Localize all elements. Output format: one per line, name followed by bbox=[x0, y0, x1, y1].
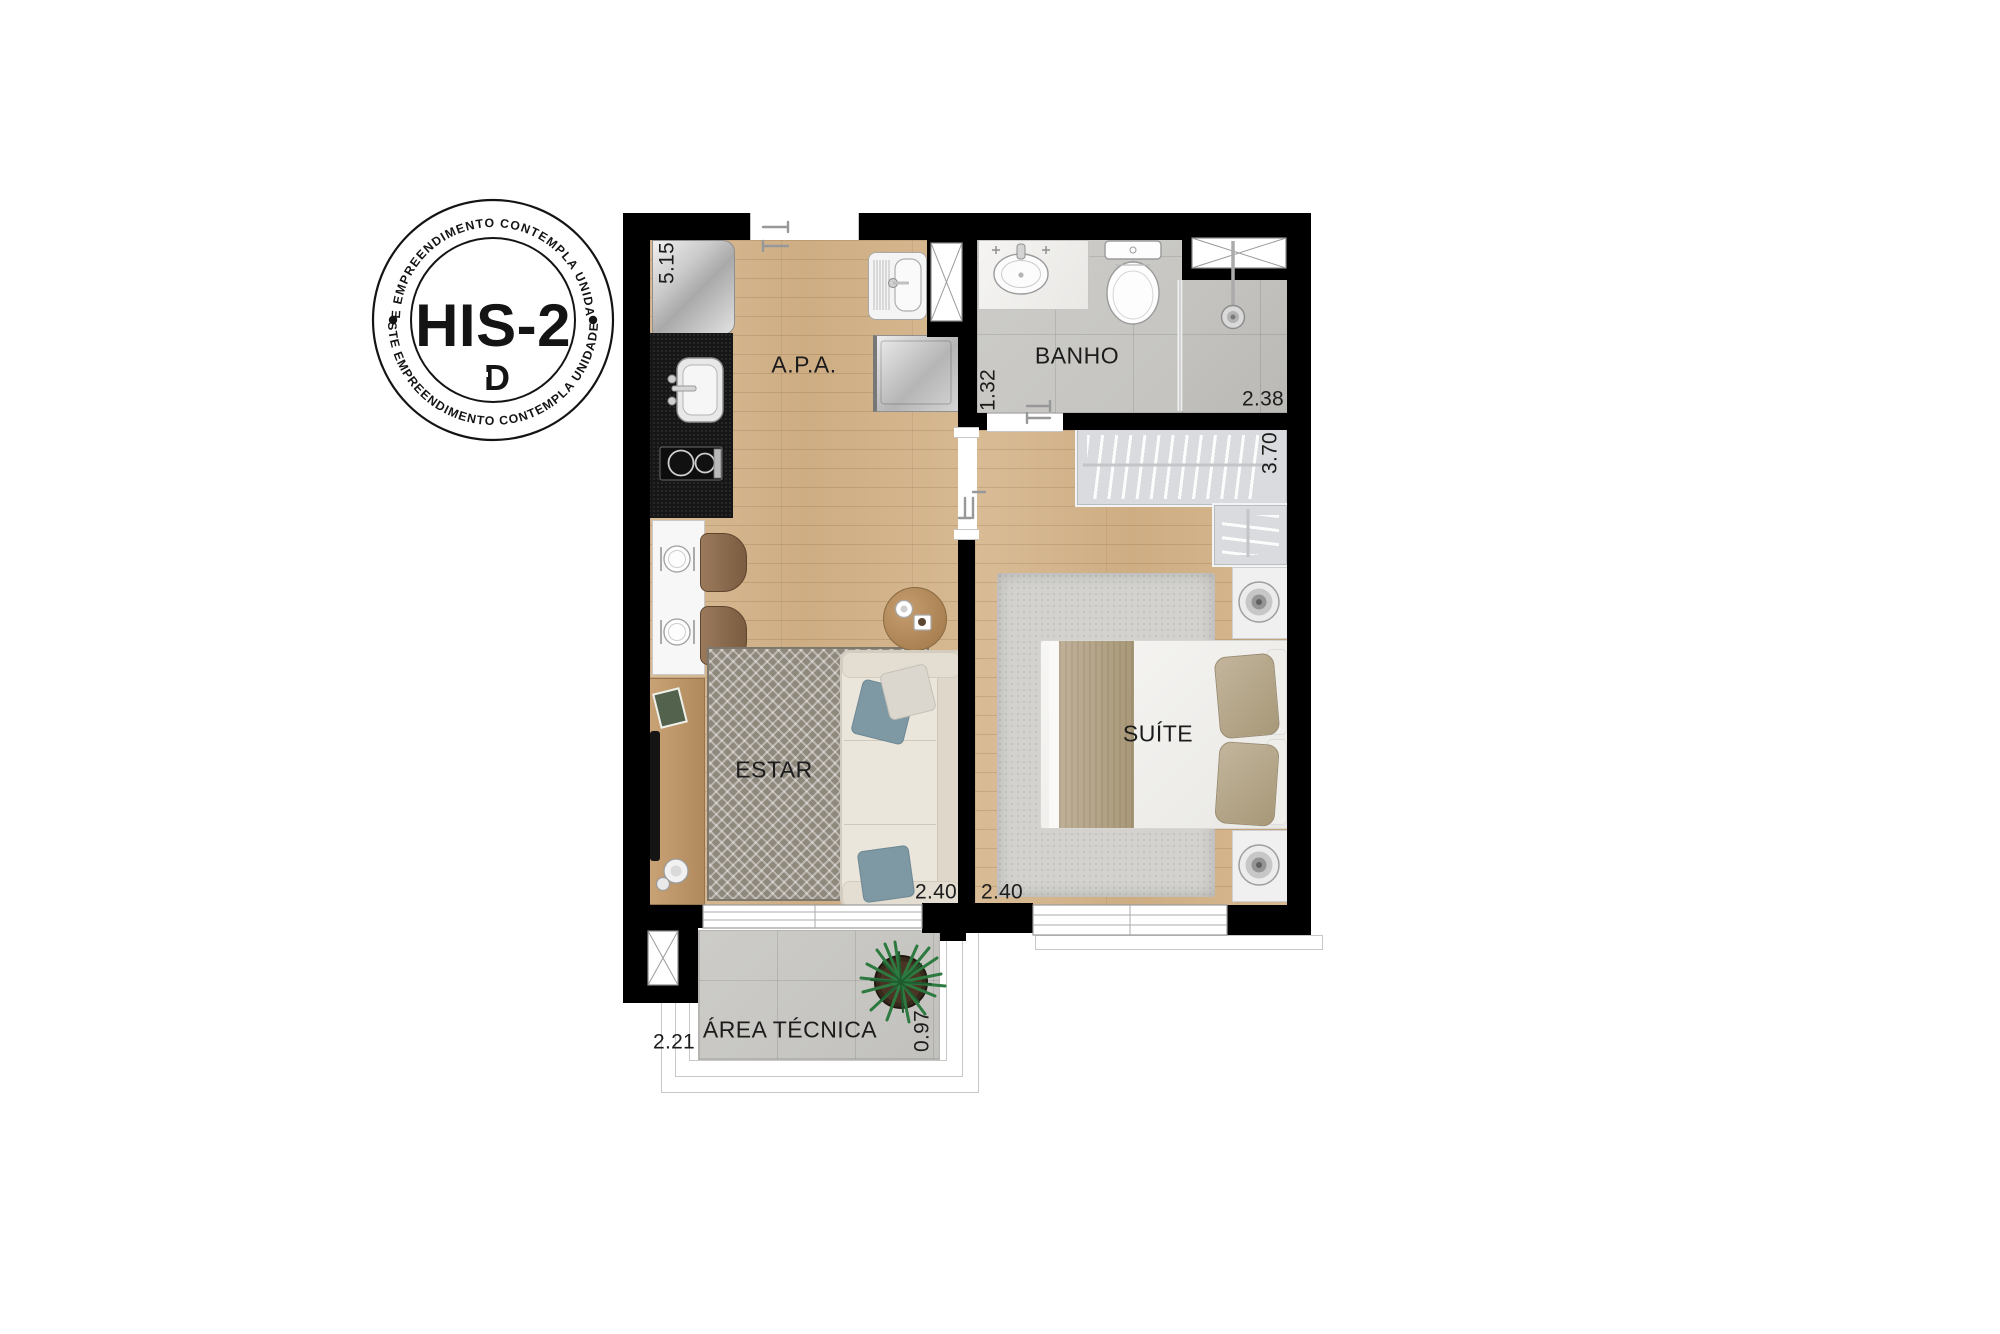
nightstand bbox=[1232, 567, 1289, 639]
sofa-backrest bbox=[937, 652, 960, 907]
page: ESTE EMPREENDIMENTO CONTEMPLA UNIDADES E… bbox=[0, 0, 2000, 1334]
wall-step bbox=[940, 929, 966, 941]
sofa bbox=[840, 650, 962, 909]
suite-door-opening bbox=[958, 435, 977, 532]
wall-right bbox=[1287, 213, 1311, 935]
dimension-suite: 2.40 bbox=[981, 882, 1023, 903]
developer-logo-icon: D bbox=[480, 357, 510, 398]
banho-door-opening bbox=[987, 413, 1063, 432]
window-sill-outline bbox=[1035, 935, 1323, 950]
dimension-estar: 2.40 bbox=[915, 882, 957, 903]
nightstand bbox=[1232, 830, 1289, 902]
closet-hangers bbox=[1222, 515, 1279, 555]
room-label-suite: SUÍTE bbox=[1123, 723, 1193, 746]
kitchen-counter bbox=[648, 333, 733, 518]
wall-left bbox=[623, 213, 650, 1003]
dining-table bbox=[652, 520, 705, 675]
sofa-pillow-blue bbox=[857, 845, 916, 904]
room-label-area-tecnica: ÁREA TÉCNICA bbox=[703, 1019, 877, 1042]
wall-apa-banho bbox=[927, 213, 977, 337]
dimension-area-tecnica-length: 2.21 bbox=[653, 1032, 695, 1053]
dimension-closet: 3.70 bbox=[1260, 432, 1281, 474]
bed-pillow bbox=[1214, 741, 1280, 827]
banho-sink-counter bbox=[978, 240, 1089, 310]
sofa-seam bbox=[844, 824, 936, 825]
room-label-estar: ESTAR bbox=[735, 759, 812, 782]
room-label-banho: BANHO bbox=[1035, 345, 1119, 368]
wall-above-shower bbox=[1182, 240, 1287, 280]
suite-door-jamb bbox=[954, 529, 979, 540]
wall-bottom-left-block bbox=[650, 907, 698, 1003]
suite-window bbox=[1033, 905, 1227, 935]
wall-estar-suite bbox=[958, 530, 975, 905]
stamp-unit-code: HIS-2 bbox=[415, 292, 571, 359]
bed-pillow bbox=[1214, 653, 1281, 740]
svg-text:D: D bbox=[484, 357, 510, 398]
entry-door-opening bbox=[750, 213, 859, 240]
dimension-shower: 2.38 bbox=[1242, 389, 1284, 410]
dining-chair bbox=[700, 533, 747, 592]
closet-side-section bbox=[1212, 503, 1289, 567]
dimension-banho: 1.32 bbox=[978, 369, 999, 411]
his-2-stamp: ESTE EMPREENDIMENTO CONTEMPLA UNIDADES E… bbox=[365, 192, 621, 448]
tv-panel bbox=[650, 731, 660, 861]
coffee-table bbox=[883, 587, 947, 651]
wall-estar-suite bbox=[958, 337, 977, 437]
floor-plan: A.P.A. BANHO SUÍTE ESTAR ÁREA TÉCNICA 5.… bbox=[623, 213, 1311, 1103]
closet-hanging-section bbox=[1075, 427, 1289, 507]
suite-door-jamb bbox=[954, 427, 979, 438]
dimension-apa: 5.15 bbox=[657, 242, 678, 284]
washing-machine bbox=[873, 335, 962, 412]
room-label-apa: A.P.A. bbox=[771, 354, 836, 377]
laundry-tank bbox=[868, 252, 927, 320]
bed-sheet-fold bbox=[1049, 641, 1059, 828]
dimension-area-tecnica-width: 0.97 bbox=[912, 1010, 933, 1052]
closet-hangers bbox=[1087, 435, 1259, 499]
wall-suite-bottom bbox=[1227, 905, 1311, 935]
wall-between-windows bbox=[922, 903, 1033, 933]
